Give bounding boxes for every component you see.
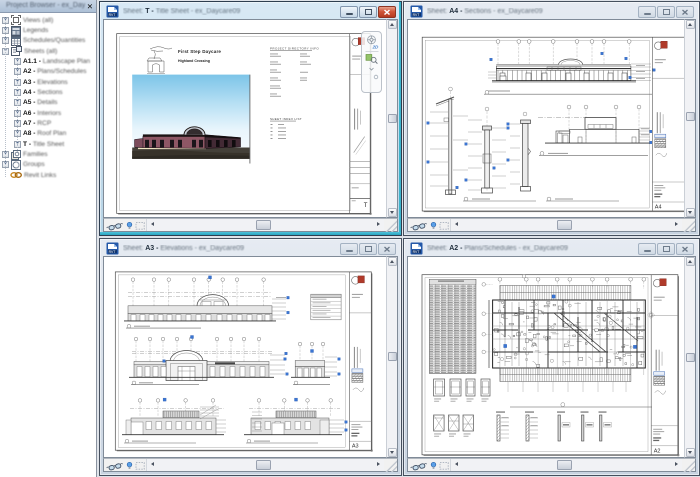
svg-text:RVT: RVT (413, 250, 420, 254)
svg-text:RVT: RVT (109, 250, 116, 254)
svg-text:A3: A3 (352, 444, 359, 450)
svg-text:A4: A4 (655, 205, 662, 211)
svg-text:SHEET INDEX LIST: SHEET INDEX LIST (270, 117, 302, 121)
svg-text:T: T (364, 203, 368, 209)
svg-text:First Step Daycare: First Step Daycare (178, 49, 221, 54)
svg-text:A2: A2 (654, 448, 661, 454)
svg-text:2D: 2D (372, 45, 380, 50)
svg-text:Highland Crossing: Highland Crossing (178, 59, 210, 63)
svg-text:RVT: RVT (413, 13, 420, 17)
svg-text:PROJECT DIRECTORY INFO: PROJECT DIRECTORY INFO (270, 47, 319, 51)
svg-text:RVT: RVT (109, 13, 116, 17)
